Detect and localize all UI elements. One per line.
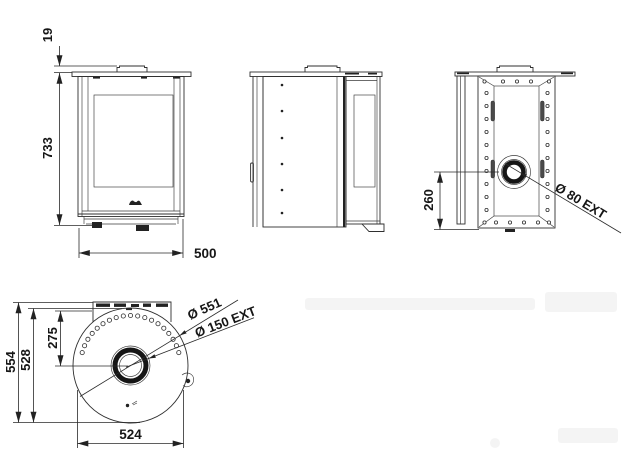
label-body-width: 524 [119, 427, 142, 442]
back-panel [478, 76, 555, 228]
bottom-center-scribble [132, 401, 137, 405]
label-overall-depth: 554 [3, 350, 18, 372]
side-view [250, 66, 384, 232]
back-panel-inner [494, 86, 539, 216]
label-body-depth: 528 [18, 349, 33, 371]
corner-bevels [479, 77, 554, 227]
label-inlet-height: 260 [421, 189, 436, 211]
rear-panel-side [346, 77, 380, 225]
stove-dimension-drawing: 19 733 500 [0, 0, 624, 460]
dim-body-depth: 528 [18, 309, 122, 423]
rear-plate-marks [457, 73, 573, 75]
bottom-center-mark [126, 404, 129, 407]
rear-bottom-mark [505, 229, 515, 232]
top-view [73, 302, 194, 423]
plinth-and-feet [84, 217, 178, 232]
door-handle [251, 163, 254, 182]
label-front-width: 500 [194, 246, 217, 261]
rear-edge-shadow [343, 77, 345, 228]
side-trim-lines [82, 77, 180, 217]
rear-top-plate [455, 72, 575, 76]
label-front-height: 733 [40, 137, 55, 159]
rear-view [455, 66, 575, 232]
air-inlet [498, 156, 531, 189]
door-latch-detail [182, 373, 194, 387]
dim-front-height: 733 [40, 73, 92, 226]
flue-collar [117, 66, 147, 72]
scan-artifacts [305, 292, 618, 448]
door-edge [251, 77, 263, 228]
dim-collar-height: 19 [40, 28, 117, 73]
side-flue-collar [305, 66, 340, 72]
rear-flue-collar [497, 66, 533, 72]
side-top-plate [250, 72, 382, 77]
rivet-dots [281, 84, 284, 215]
rear-foot [362, 224, 384, 232]
recessed-back-side [354, 95, 375, 187]
vent-slots [96, 304, 168, 311]
drawing-svg: 19 733 500 [0, 0, 624, 460]
stove-body-side [263, 77, 346, 228]
top-plate-marks [93, 77, 180, 79]
keyhole-slots [491, 101, 544, 178]
label-flue-setback: 275 [45, 327, 60, 349]
door-glass [94, 95, 173, 187]
side-panel-edge [457, 76, 465, 224]
brand-logo [129, 201, 142, 206]
side-plate-marks [345, 73, 377, 75]
dim-body-width: 524 [78, 390, 184, 448]
leader-top-plate-diameter: Ø 551 [80, 295, 238, 397]
label-collar-height: 19 [40, 28, 55, 42]
front-view [72, 66, 191, 231]
top-plate [72, 72, 191, 77]
label-inlet-diameter: Ø 80 EXT [552, 180, 609, 222]
